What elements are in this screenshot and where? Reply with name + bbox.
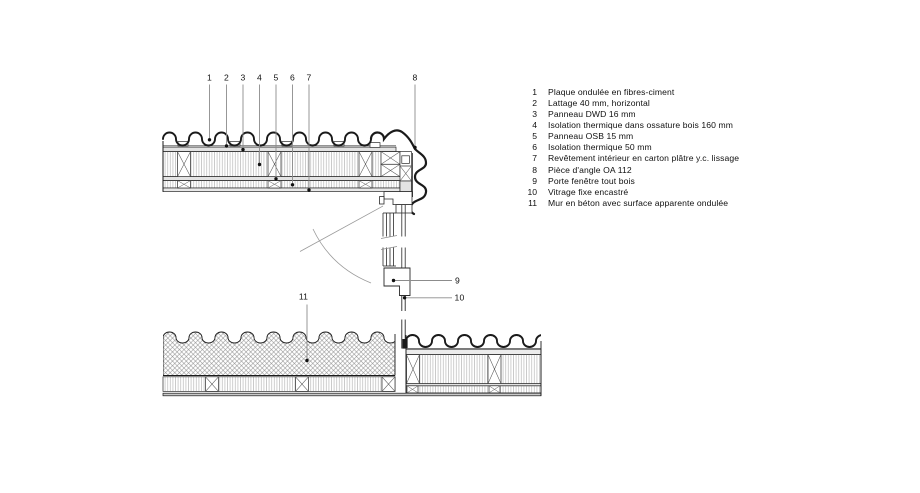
callout-10: 10	[455, 294, 465, 303]
legend-num: 5	[520, 131, 537, 141]
callout-dot-5	[274, 177, 277, 180]
bottom-roof-assembly	[406, 335, 549, 396]
callout-dot-4	[258, 163, 261, 166]
ceiling-lining-band	[163, 393, 541, 396]
legend-num: 3	[520, 109, 537, 119]
legend-num: 1	[520, 87, 537, 97]
timber-batten	[268, 181, 281, 188]
callout-11: 11	[299, 293, 308, 302]
timber-stud	[206, 377, 219, 392]
callout-dot-8	[413, 146, 416, 149]
timber-stud	[296, 377, 309, 392]
legend-row: 6Isolation thermique 50 mm	[520, 142, 739, 153]
section-detail-figure: 1 2 3 4 5 6 7 8 9 10 11 1Plaque ondulée …	[0, 0, 920, 493]
legend-text: Vitrage fixe encastré	[548, 187, 628, 197]
callout-dot-6	[291, 183, 294, 186]
timber-stud	[359, 152, 372, 177]
under-wall-insulation	[163, 377, 395, 392]
timber-batten	[178, 181, 191, 188]
timber-stud	[407, 355, 420, 384]
timber-batten	[407, 386, 418, 393]
legend-row: 11Mur en béton avec surface apparente on…	[520, 197, 739, 208]
window-frame-head	[380, 192, 413, 213]
top-roof-assembly	[163, 130, 426, 214]
legend-text: Lattage 40 mm, horizontal	[548, 98, 650, 108]
callout-5: 5	[274, 73, 279, 82]
insulation-50-lower	[406, 386, 541, 393]
insulation-160-lower	[406, 355, 541, 384]
legend-num: 8	[520, 165, 537, 175]
callout-2: 2	[224, 73, 229, 82]
callout-dot-2	[225, 144, 228, 147]
break-gap-marks	[381, 236, 397, 250]
legend-num: 6	[520, 142, 537, 152]
timber-stud	[382, 377, 395, 392]
insulation-50-layer	[163, 181, 412, 188]
osb-band	[163, 177, 412, 181]
detail-drawing	[0, 0, 920, 493]
callout-3: 3	[241, 73, 246, 82]
legend-num: 4	[520, 120, 537, 130]
callout-7: 7	[307, 73, 312, 82]
dwd-band-lower	[406, 350, 541, 355]
door-leaf-line	[300, 206, 383, 252]
callout-4: 4	[257, 73, 262, 82]
callout-8: 8	[413, 73, 418, 82]
legend-text: Panneau DWD 16 mm	[548, 109, 636, 119]
legend-text: Porte fenêtre tout bois	[548, 176, 635, 186]
legend-row: 8Pièce d'angle OA 112	[520, 164, 739, 175]
legend: 1Plaque ondulée en fibres-ciment 2Lattag…	[520, 86, 739, 209]
legend-row: 10Vitrage fixe encastré	[520, 186, 739, 197]
legend-row: 3Panneau DWD 16 mm	[520, 108, 739, 119]
legend-row: 1Plaque ondulée en fibres-ciment	[520, 86, 739, 97]
legend-text: Isolation thermique dans ossature bois 1…	[548, 120, 733, 130]
legend-text: Mur en béton avec surface apparente ondu…	[548, 198, 728, 208]
callout-dot-1	[208, 138, 211, 141]
legend-text: Panneau OSB 15 mm	[548, 131, 633, 141]
legend-text: Revêtement intérieur en carton plâtre y.…	[548, 153, 739, 163]
legend-num: 9	[520, 176, 537, 186]
legend-row: 4Isolation thermique dans ossature bois …	[520, 119, 739, 130]
legend-row: 9Porte fenêtre tout bois	[520, 175, 739, 186]
callout-6: 6	[290, 73, 295, 82]
timber-stud	[178, 152, 191, 177]
legend-num: 11	[520, 198, 537, 208]
window-door-frame	[300, 192, 412, 349]
bottom-assembly	[163, 332, 549, 396]
legend-row: 5Panneau OSB 15 mm	[520, 131, 739, 142]
legend-num: 2	[520, 98, 537, 108]
callout-dot-10	[403, 296, 406, 299]
interior-lining-band	[163, 188, 412, 192]
callout-dot-11	[305, 359, 308, 362]
callout-dot-9	[392, 279, 395, 282]
window-frame-sill	[384, 268, 410, 296]
legend-text: Plaque ondulée en fibres-ciment	[548, 87, 674, 97]
callout-1: 1	[207, 73, 212, 82]
legend-row: 7Revêtement intérieur en carton plâtre y…	[520, 153, 739, 164]
timber-batten	[359, 181, 372, 188]
legend-row: 2Lattage 40 mm, horizontal	[520, 97, 739, 108]
lattage-batten	[370, 143, 380, 148]
legend-num: 7	[520, 153, 537, 163]
dwd-panel-band	[163, 147, 396, 152]
callout-dot-3	[241, 148, 244, 151]
legend-num: 10	[520, 187, 537, 197]
concrete-wall	[163, 332, 397, 375]
corrugated-sheet-lower	[406, 335, 549, 347]
legend-text: Pièce d'angle OA 112	[548, 165, 632, 175]
door-swing-arc	[313, 229, 371, 283]
callout-leaders	[210, 85, 453, 360]
callout-dot-7	[307, 188, 310, 191]
timber-stud	[268, 152, 281, 177]
lattage-battens	[178, 142, 380, 148]
timber-batten	[489, 386, 500, 393]
timber-stud	[488, 355, 501, 384]
legend-text: Isolation thermique 50 mm	[548, 142, 652, 152]
callout-9: 9	[455, 276, 460, 285]
